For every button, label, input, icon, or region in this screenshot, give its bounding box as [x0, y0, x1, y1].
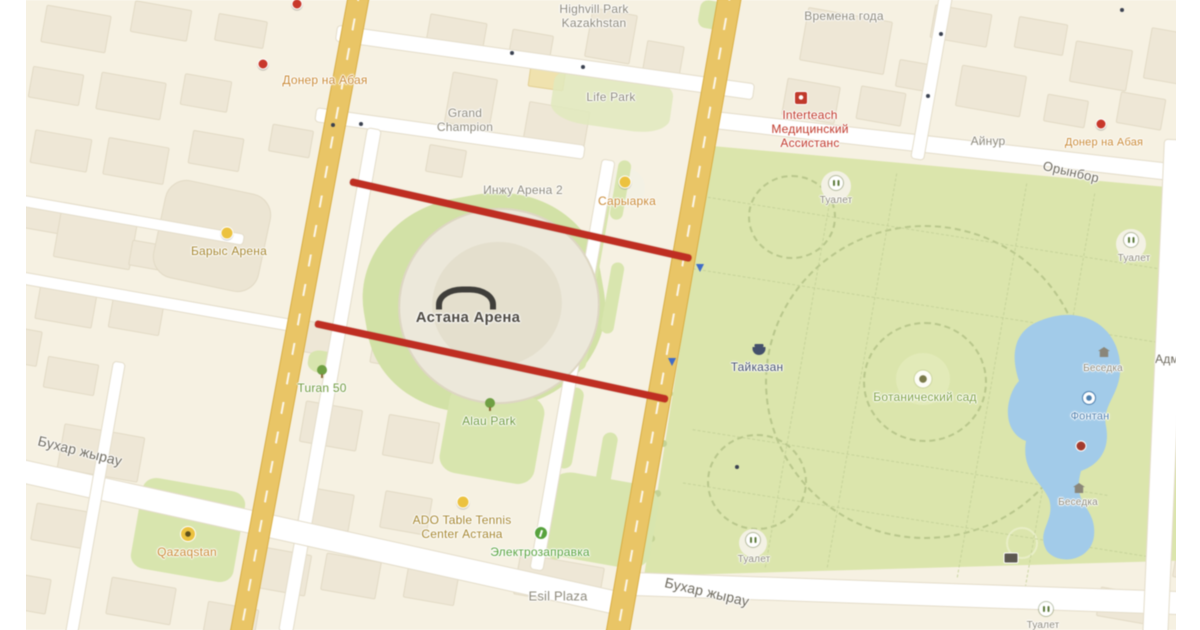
poi-label-botanical-garden[interactable]: Ботанический сад — [873, 390, 976, 404]
poi-label-ainur[interactable]: Айнур — [971, 134, 1006, 148]
traffic-dot-icon — [735, 465, 739, 469]
poi-label-toilet-3[interactable]: Туалет — [738, 554, 771, 566]
park-badge-icon — [1004, 553, 1019, 564]
interteach-icon[interactable] — [794, 91, 808, 105]
poi-label-toilet-4[interactable]: Туалет — [1027, 620, 1060, 630]
doner-top-pin-icon[interactable] — [292, 0, 303, 10]
qazaqstan-icon[interactable] — [180, 526, 196, 542]
poi-label-taikazan[interactable]: Тайказан — [731, 360, 784, 374]
stadium-roof-icon — [436, 287, 496, 310]
poi-label-qazaqstan[interactable]: Qazaqstan — [157, 545, 217, 559]
tree-icon — [317, 365, 327, 375]
poi-label-besedka-1[interactable]: Беседка — [1083, 363, 1123, 375]
right-frame-bar — [1176, 0, 1200, 630]
poi-label-turan-50[interactable]: Turan 50 — [297, 381, 346, 395]
screenshot-root: Highvill Park KazakhstanLife ParkДонер н… — [0, 0, 1200, 630]
doner-right-pin-icon[interactable] — [1096, 119, 1107, 130]
poi-label-toilet-1[interactable]: Туалет — [820, 195, 853, 207]
park-center-icon — [915, 371, 932, 388]
poi-label-toilet-2[interactable]: Туалет — [1118, 253, 1151, 265]
lake-buoy-icon[interactable] — [1076, 441, 1087, 452]
left-frame-bar — [0, 0, 26, 630]
poi-label-besedka-2[interactable]: Беседка — [1058, 497, 1098, 509]
poi-label-astana-arena[interactable]: Астана Арена — [416, 309, 520, 327]
traffic-dot-icon — [1120, 8, 1124, 12]
traffic-dot-icon — [581, 65, 585, 69]
nav-arrow-icon — [696, 264, 704, 272]
poi-label-inzhu-arena-2[interactable]: Инжу Арена 2 — [483, 183, 563, 197]
toilet-icon[interactable] — [1039, 602, 1053, 616]
toilet-icon[interactable] — [829, 176, 843, 190]
tree-icon — [485, 398, 495, 408]
traffic-dot-icon — [331, 123, 335, 127]
electro-icon[interactable] — [534, 526, 548, 540]
poi-label-barys-arena[interactable]: Барыс Арена — [191, 244, 267, 258]
saryarka-icon[interactable] — [619, 176, 632, 189]
poi-label-ado-table-tennis[interactable]: ADO Table Tennis Center Астана — [413, 513, 512, 541]
poi-label-saryarka[interactable]: Сарыарка — [598, 194, 656, 208]
poi-label-highvill-park[interactable]: Highvill Park Kazakhstan — [559, 2, 628, 30]
poi-label-electrozapravka[interactable]: Электрозаправка — [490, 545, 590, 559]
traffic-dot-icon — [359, 122, 363, 126]
barys-arena-icon[interactable] — [221, 227, 234, 240]
traffic-dot-icon — [939, 32, 943, 36]
toilet-icon[interactable] — [746, 533, 760, 547]
poi-label-doner-abaya-right[interactable]: Донер на Абая — [1065, 137, 1143, 150]
ado-icon[interactable] — [457, 496, 470, 509]
traffic-dot-icon — [926, 94, 930, 98]
map-canvas[interactable]: Highvill Park KazakhstanLife ParkДонер н… — [0, 0, 1200, 630]
poi-label-fountain[interactable]: Фонтан — [1071, 411, 1110, 424]
nav-arrow-icon — [668, 358, 676, 366]
poi-label-doner-abaya-left[interactable]: Донер на Абая — [282, 73, 367, 87]
poi-label-interteach[interactable]: Interteach Медицинский Ассистанс — [771, 108, 848, 150]
traffic-dot-icon — [510, 51, 514, 55]
poi-label-esil-plaza[interactable]: Esil Plaza — [528, 588, 587, 603]
toilet-icon[interactable] — [1124, 233, 1138, 247]
poi-label-vremena-goda[interactable]: Времена года — [804, 9, 884, 23]
doner-left-pin-icon[interactable] — [258, 59, 269, 70]
poi-label-alau-park[interactable]: Alau Park — [462, 414, 516, 428]
poi-label-life-park[interactable]: Life Park — [586, 90, 635, 104]
fountain-icon[interactable] — [1082, 391, 1096, 405]
poi-label-grand-champion[interactable]: Grand Champion — [437, 106, 493, 134]
